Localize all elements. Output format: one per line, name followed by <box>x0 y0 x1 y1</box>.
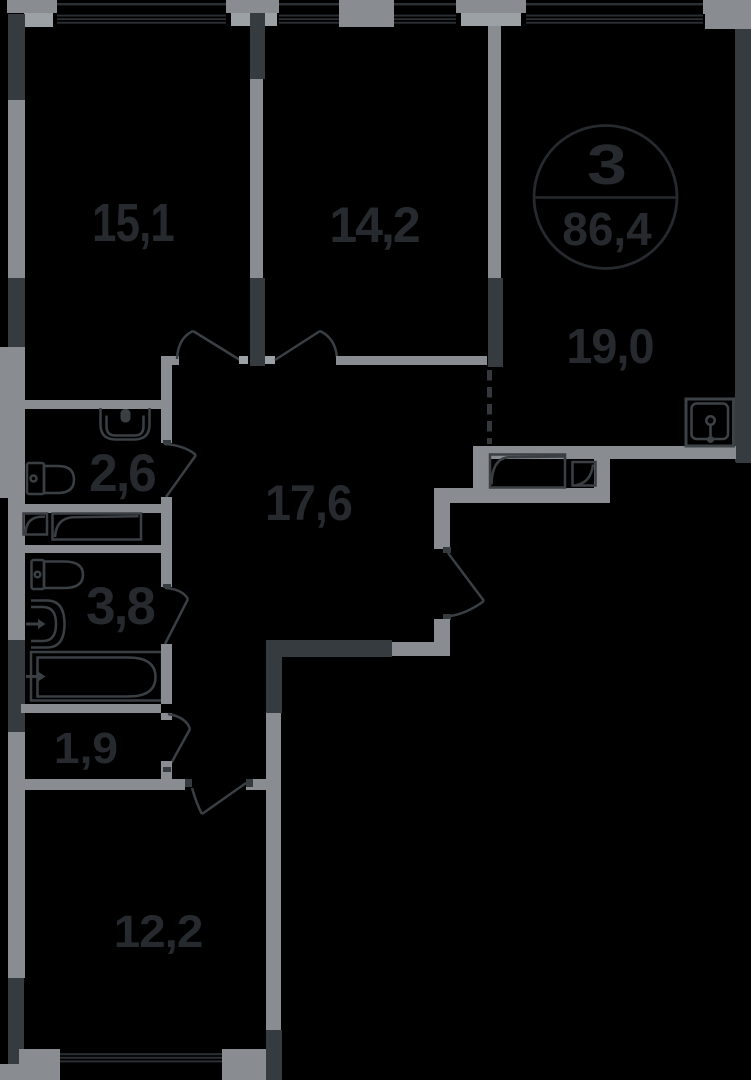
svg-text:19,0: 19,0 <box>566 320 653 374</box>
svg-text:3,8: 3,8 <box>86 577 154 636</box>
svg-text:12,2: 12,2 <box>114 906 203 956</box>
svg-text:15,1: 15,1 <box>92 194 174 253</box>
svg-text:1,9: 1,9 <box>54 723 118 773</box>
svg-text:2,6: 2,6 <box>89 444 156 503</box>
svg-text:86,4: 86,4 <box>562 203 652 255</box>
svg-text:3: 3 <box>587 132 627 196</box>
svg-text:17,6: 17,6 <box>265 475 352 531</box>
svg-text:14,2: 14,2 <box>329 197 419 253</box>
